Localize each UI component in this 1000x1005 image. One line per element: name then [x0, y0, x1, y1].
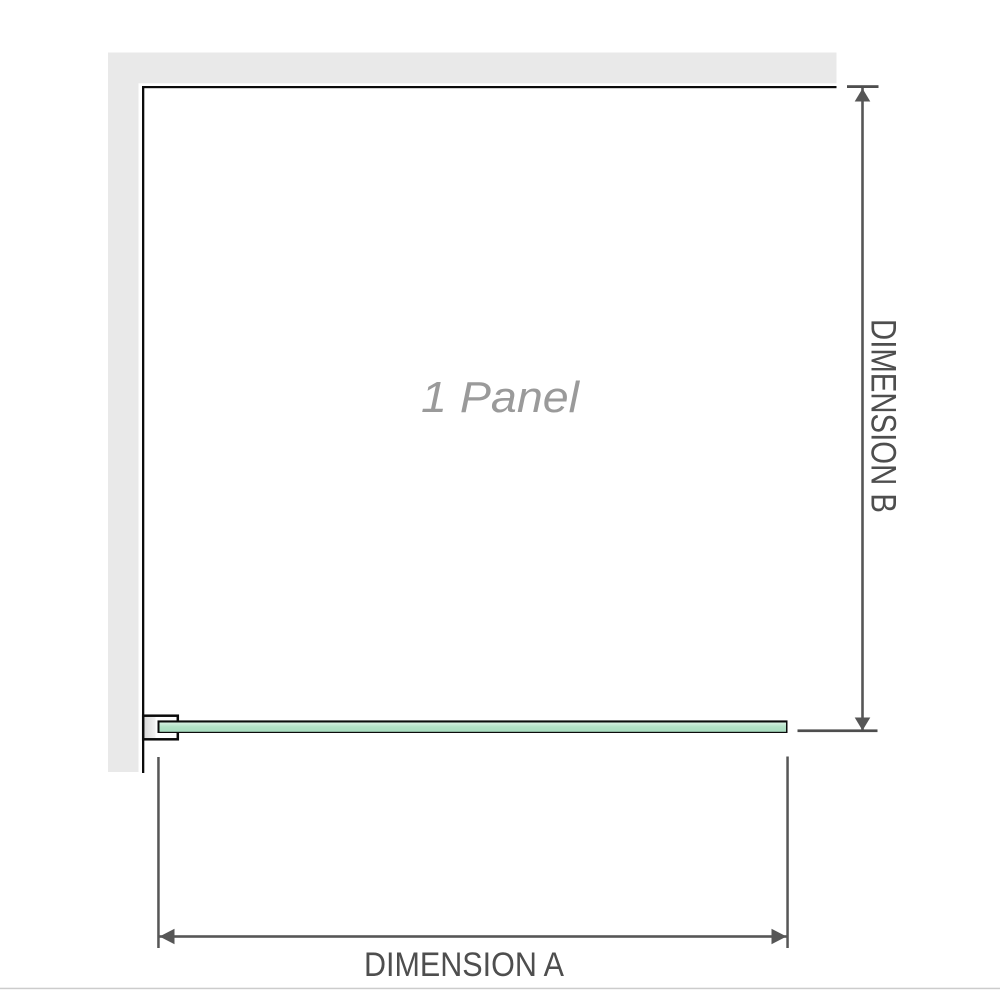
svg-text:DIMENSION B: DIMENSION B — [864, 319, 903, 513]
svg-text:DIMENSION A: DIMENSION A — [364, 946, 564, 984]
svg-text:1 Panel: 1 Panel — [421, 373, 580, 422]
